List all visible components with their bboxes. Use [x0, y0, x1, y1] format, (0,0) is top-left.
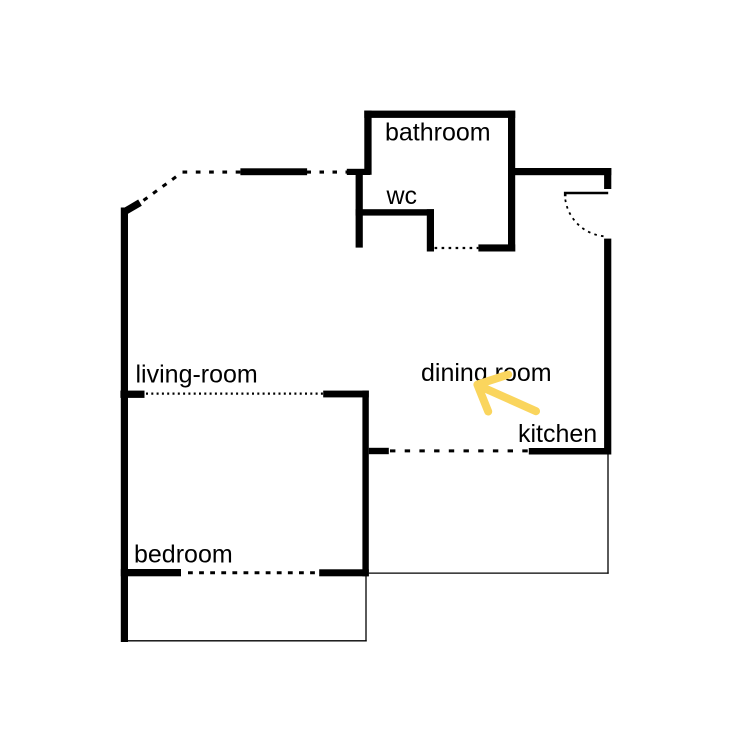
- svg-text:kitchen: kitchen: [518, 420, 597, 448]
- svg-text:living-room: living-room: [136, 360, 258, 388]
- svg-text:bathroom: bathroom: [385, 118, 491, 146]
- svg-text:bedroom: bedroom: [134, 541, 233, 569]
- svg-text:wc: wc: [386, 182, 418, 210]
